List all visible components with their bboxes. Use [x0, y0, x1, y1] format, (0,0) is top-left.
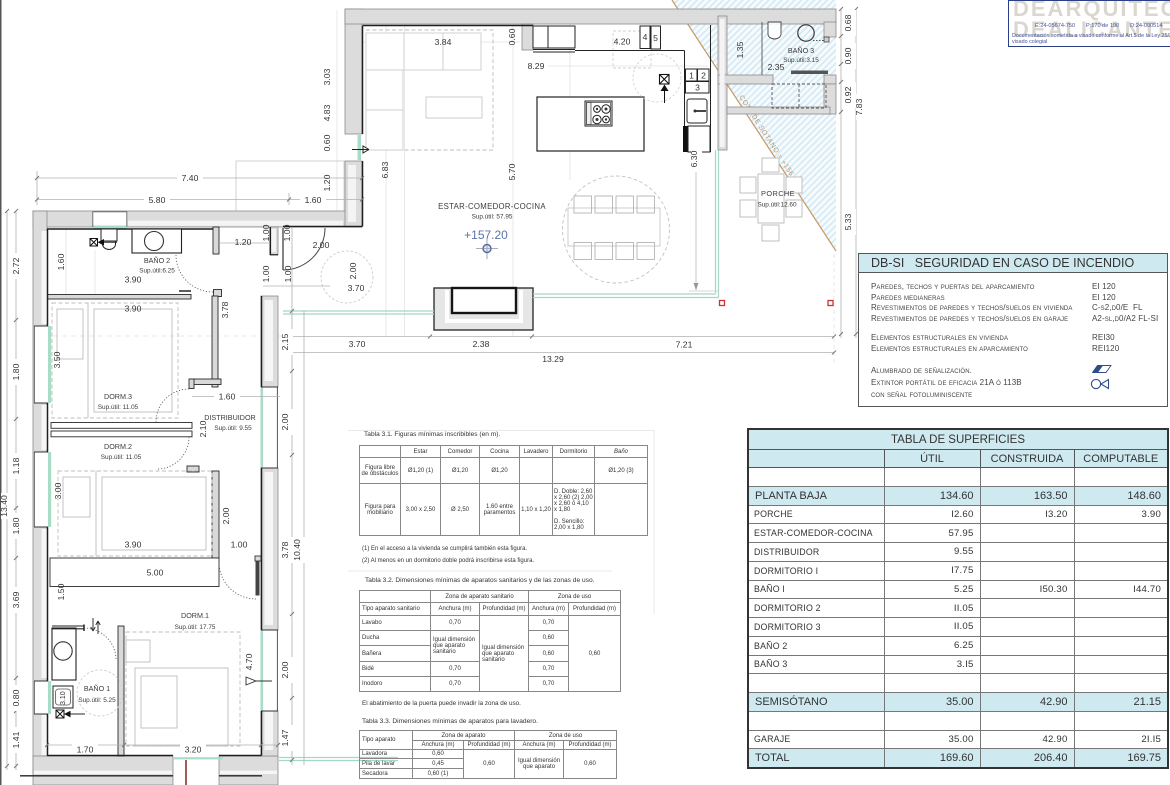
svg-text:1.20: 1.20 — [322, 174, 332, 191]
svg-text:3.70: 3.70 — [349, 339, 366, 349]
svg-text:Sup.útil: 5.25: Sup.útil: 5.25 — [78, 697, 116, 704]
svg-text:8.29: 8.29 — [528, 61, 545, 71]
svg-text:3.70: 3.70 — [348, 283, 365, 293]
svg-text:3.90: 3.90 — [125, 304, 142, 314]
svg-text:5.00: 5.00 — [147, 568, 164, 578]
svg-text:1: 1 — [689, 71, 694, 81]
svg-text:3: 3 — [695, 83, 700, 93]
svg-text:2.00: 2.00 — [280, 413, 290, 430]
svg-text:Sup.útil: 17.75: Sup.útil: 17.75 — [175, 624, 216, 631]
svg-text:BAÑO 2: BAÑO 2 — [144, 256, 170, 265]
svg-text:BAÑO 3: BAÑO 3 — [788, 46, 814, 55]
svg-text:5.70: 5.70 — [507, 163, 517, 180]
svg-text:1.60: 1.60 — [219, 392, 236, 402]
svg-text:2: 2 — [701, 71, 706, 81]
svg-text:3.03: 3.03 — [322, 68, 332, 85]
svg-text:3.10: 3.10 — [60, 691, 67, 705]
svg-text:3.20: 3.20 — [185, 745, 202, 755]
svg-text:6.30: 6.30 — [689, 150, 699, 167]
svg-text:4: 4 — [643, 32, 648, 42]
svg-text:Sup.útil: 9.55: Sup.útil: 9.55 — [214, 425, 252, 432]
svg-text:1.00: 1.00 — [261, 224, 271, 241]
svg-text:2.38: 2.38 — [473, 339, 490, 349]
svg-text:3.00: 3.00 — [53, 482, 63, 499]
svg-text:DORM.2: DORM.2 — [104, 442, 132, 451]
svg-text:2.00: 2.00 — [280, 661, 290, 678]
svg-text:0.80: 0.80 — [11, 689, 21, 706]
svg-text:Sup.útil:12.60: Sup.útil:12.60 — [757, 202, 797, 209]
svg-text:4.20: 4.20 — [614, 37, 631, 47]
svg-text:Sup.útil: 11.05: Sup.útil: 11.05 — [101, 454, 142, 461]
svg-text:0.90: 0.90 — [843, 47, 853, 64]
svg-text:3.84: 3.84 — [435, 37, 452, 47]
svg-text:4.70: 4.70 — [244, 653, 254, 670]
svg-text:2.72: 2.72 — [11, 257, 21, 274]
svg-text:0.60: 0.60 — [507, 28, 517, 45]
svg-text:BAÑO 1: BAÑO 1 — [84, 684, 110, 693]
svg-text:5.33: 5.33 — [843, 213, 853, 230]
svg-text:1.47: 1.47 — [280, 729, 290, 746]
svg-text:ESTAR-COMEDOR-COCINA: ESTAR-COMEDOR-COCINA — [438, 202, 546, 211]
svg-text:DISTRIBUIDOR: DISTRIBUIDOR — [204, 413, 256, 422]
svg-text:DORM.3: DORM.3 — [104, 392, 132, 401]
svg-text:3.78: 3.78 — [220, 301, 230, 318]
svg-text:5.80: 5.80 — [149, 195, 166, 205]
svg-text:3.90: 3.90 — [125, 540, 142, 550]
svg-text:Sup.útil:6.25: Sup.útil:6.25 — [139, 268, 175, 275]
svg-text:1.20: 1.20 — [235, 237, 252, 247]
svg-text:2.15: 2.15 — [280, 333, 290, 350]
svg-text:3.69: 3.69 — [11, 591, 21, 608]
svg-text:2.00: 2.00 — [313, 240, 330, 250]
svg-text:3.78: 3.78 — [280, 541, 290, 558]
svg-text:1.60: 1.60 — [305, 195, 322, 205]
svg-text:+157.20: +157.20 — [464, 228, 508, 242]
svg-text:1.00: 1.00 — [282, 224, 292, 241]
svg-text:1.18: 1.18 — [11, 457, 21, 474]
svg-text:1.70: 1.70 — [77, 745, 94, 755]
svg-text:3.50: 3.50 — [52, 351, 62, 368]
svg-text:2.10: 2.10 — [198, 420, 208, 437]
svg-text:1.41: 1.41 — [11, 731, 21, 748]
svg-text:2.00: 2.00 — [221, 507, 231, 524]
svg-text:2.35: 2.35 — [768, 62, 785, 72]
svg-text:13.40: 13.40 — [0, 495, 9, 517]
svg-text:1.35: 1.35 — [735, 41, 745, 58]
svg-text:3.90: 3.90 — [125, 275, 142, 285]
svg-text:5: 5 — [653, 33, 658, 43]
svg-text:PORCHE: PORCHE — [761, 189, 795, 198]
svg-text:1.80: 1.80 — [11, 517, 21, 534]
svg-text:1.00: 1.00 — [231, 540, 248, 550]
svg-text:7.83: 7.83 — [854, 98, 864, 115]
svg-text:7.40: 7.40 — [182, 173, 199, 183]
svg-text:13.29: 13.29 — [542, 354, 564, 364]
svg-text:1.00: 1.00 — [283, 265, 293, 282]
svg-text:1.00: 1.00 — [261, 265, 271, 282]
svg-text:0.60: 0.60 — [322, 134, 332, 151]
svg-text:DORM.1: DORM.1 — [181, 611, 209, 620]
svg-text:10.40: 10.40 — [292, 539, 302, 561]
svg-text:1.60: 1.60 — [56, 253, 66, 270]
svg-text:Sup.útil: 11.05: Sup.útil: 11.05 — [98, 404, 139, 411]
svg-text:1.50: 1.50 — [56, 583, 66, 600]
svg-text:2.00: 2.00 — [348, 262, 358, 279]
svg-text:0.92: 0.92 — [843, 86, 853, 103]
svg-text:Sup.útil:3.15: Sup.útil:3.15 — [783, 57, 819, 64]
svg-text:Sup.útil: 57.95: Sup.útil: 57.95 — [472, 214, 513, 221]
svg-text:4.83: 4.83 — [322, 104, 332, 121]
svg-text:6.83: 6.83 — [380, 161, 390, 178]
svg-text:1.80: 1.80 — [11, 363, 21, 380]
svg-text:0.68: 0.68 — [843, 14, 853, 31]
svg-text:7.21: 7.21 — [676, 340, 693, 350]
